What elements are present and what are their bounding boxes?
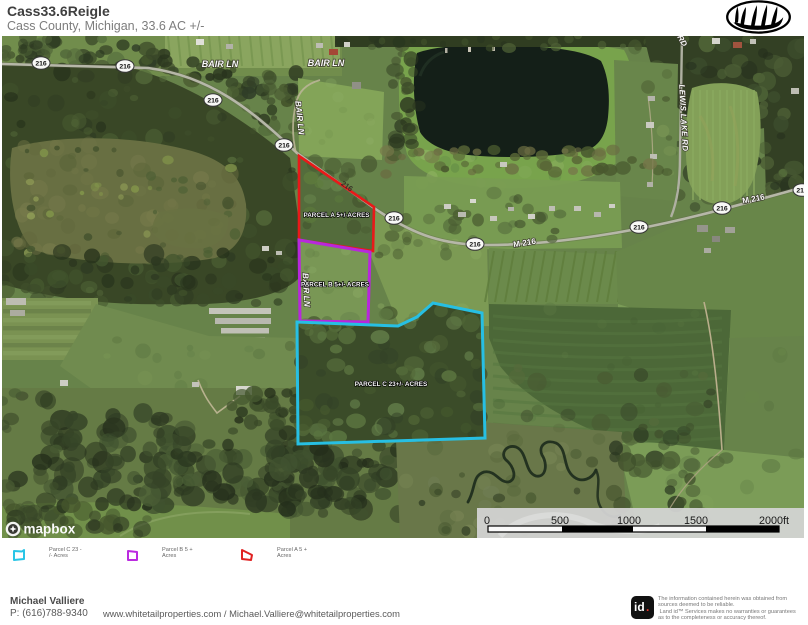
- svg-text:216: 216: [716, 205, 728, 212]
- svg-text:PARCEL C 23+/- ACRES: PARCEL C 23+/- ACRES: [355, 381, 428, 388]
- svg-text:216: 216: [633, 224, 645, 231]
- svg-text:1500: 1500: [684, 515, 708, 527]
- svg-text:216: 216: [388, 215, 400, 222]
- svg-text:216: 216: [469, 241, 481, 248]
- svg-text:mapbox: mapbox: [24, 522, 76, 537]
- svg-text:216: 216: [207, 97, 219, 104]
- svg-text:216: 216: [278, 142, 290, 149]
- svg-text:BAIR LN: BAIR LN: [301, 273, 313, 308]
- svg-text:216: 216: [119, 63, 131, 70]
- svg-text:BAIR LN: BAIR LN: [308, 58, 345, 68]
- svg-text:0: 0: [484, 515, 490, 527]
- svg-text:216: 216: [35, 60, 47, 67]
- svg-text:PARCEL A 5+/-ACRES: PARCEL A 5+/-ACRES: [304, 212, 370, 219]
- svg-text:2000ft: 2000ft: [759, 515, 789, 527]
- svg-text:216: 216: [796, 187, 808, 194]
- svg-text:PARCEL B 5+/- ACRES: PARCEL B 5+/- ACRES: [301, 282, 369, 289]
- svg-text:1000: 1000: [617, 515, 641, 527]
- svg-text:500: 500: [551, 515, 569, 527]
- svg-text:BAIR LN: BAIR LN: [202, 59, 239, 69]
